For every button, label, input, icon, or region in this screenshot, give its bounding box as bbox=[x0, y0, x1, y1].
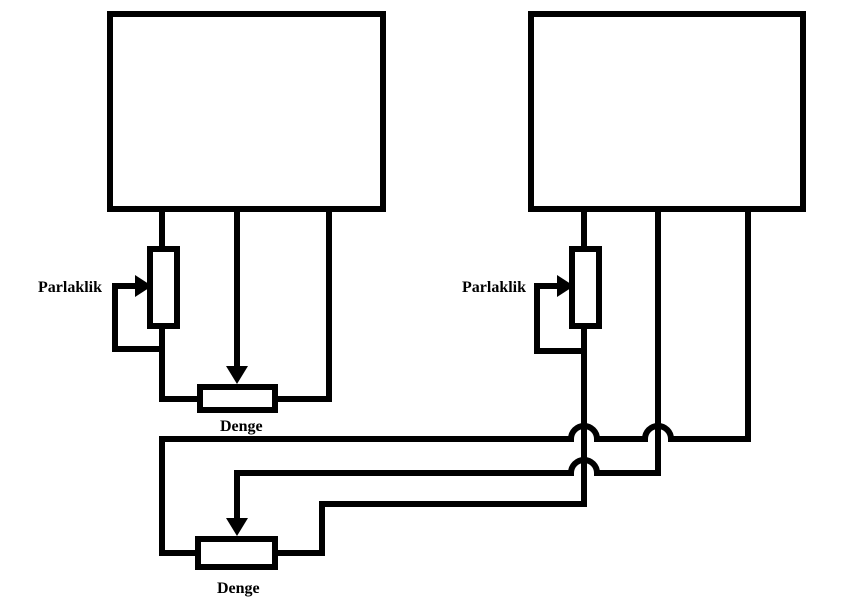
left-brightness-pot-bottom-lead-wire bbox=[162, 323, 201, 399]
left-brightness-label: Parlaklik bbox=[38, 279, 102, 296]
bottom-balance-label: Denge bbox=[217, 580, 260, 597]
left-balance-label: Denge bbox=[220, 418, 263, 435]
left-balance-right-lead-wire bbox=[272, 209, 329, 399]
right-brightness-pot-body bbox=[572, 249, 599, 326]
left-monitor-box bbox=[110, 14, 383, 209]
bottom-balance-wiper-arrow-icon bbox=[226, 518, 248, 536]
right-monitor-box bbox=[531, 14, 803, 209]
left-brightness-pot-body bbox=[150, 249, 177, 326]
crt-brightness-balance-circuit-diagram: Parlaklik Parlaklik Denge Denge bbox=[0, 0, 847, 616]
bottom-balance-pot-body bbox=[198, 539, 275, 567]
circuit-diagram-page: Parlaklik Parlaklik Denge Denge bbox=[0, 0, 847, 616]
left-balance-pot-body bbox=[200, 387, 275, 410]
right-brightness-label: Parlaklik bbox=[462, 279, 526, 296]
left-balance-wiper-arrow-icon bbox=[226, 366, 248, 384]
